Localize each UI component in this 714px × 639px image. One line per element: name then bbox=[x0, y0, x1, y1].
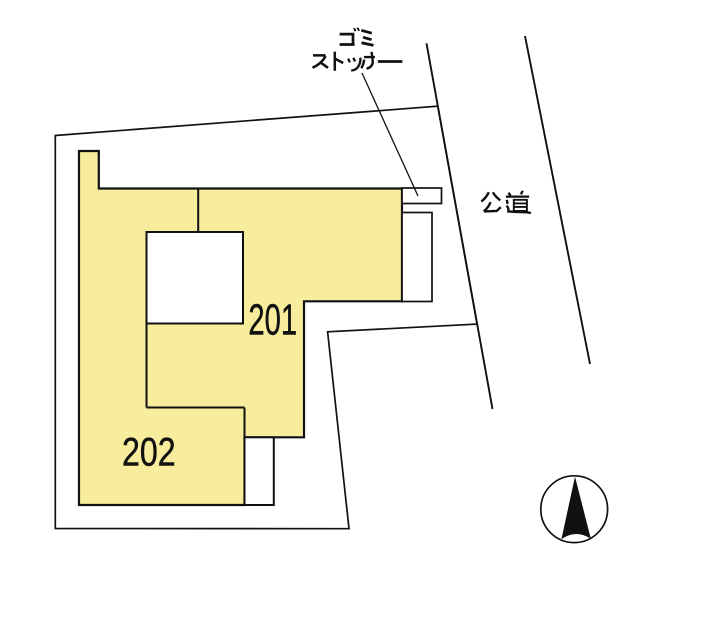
svg-text:202: 202 bbox=[122, 430, 176, 474]
svg-text:201: 201 bbox=[248, 297, 297, 345]
